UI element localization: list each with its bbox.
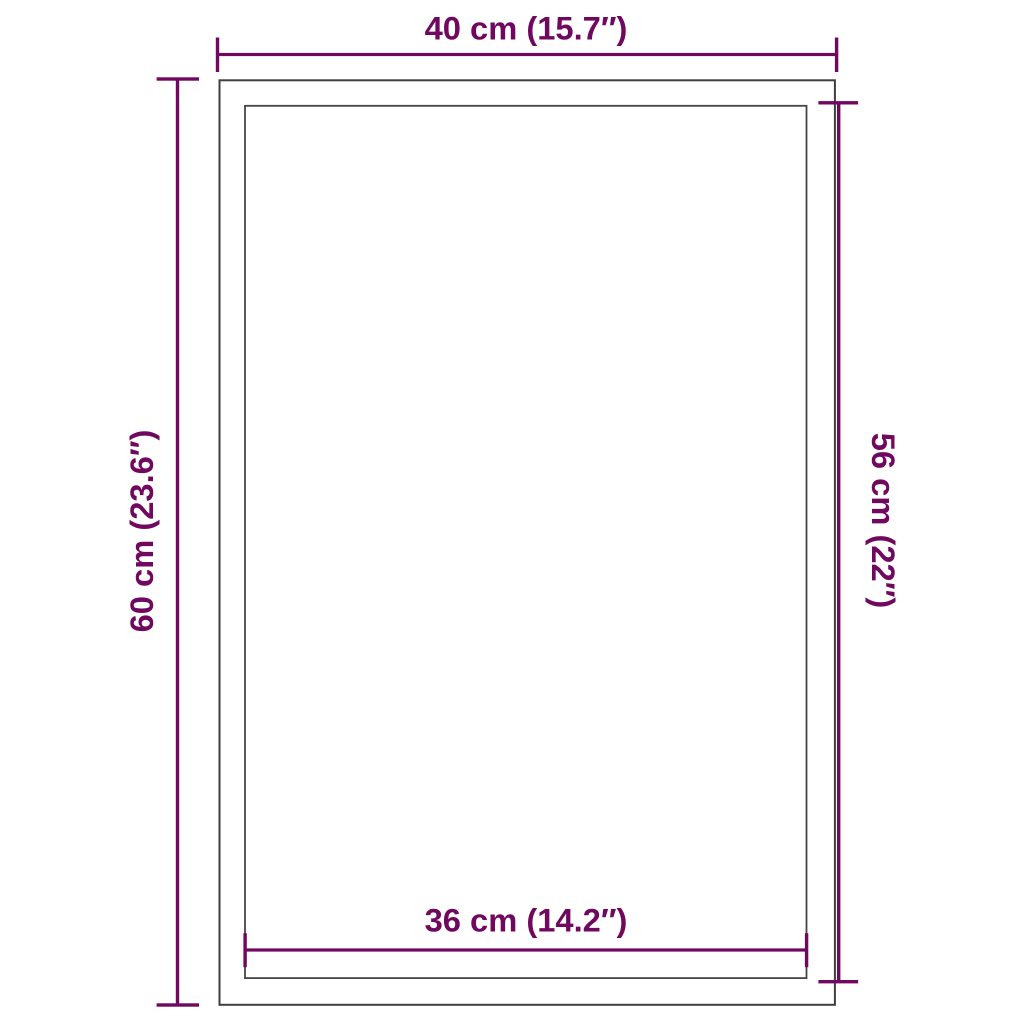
svg-text:40 cm (15.7″): 40 cm (15.7″) bbox=[425, 10, 628, 47]
svg-text:60 cm (23.6″): 60 cm (23.6″) bbox=[123, 430, 160, 633]
svg-text:36 cm (14.2″): 36 cm (14.2″) bbox=[425, 902, 628, 939]
svg-text:56 cm (22″): 56 cm (22″) bbox=[865, 433, 902, 609]
